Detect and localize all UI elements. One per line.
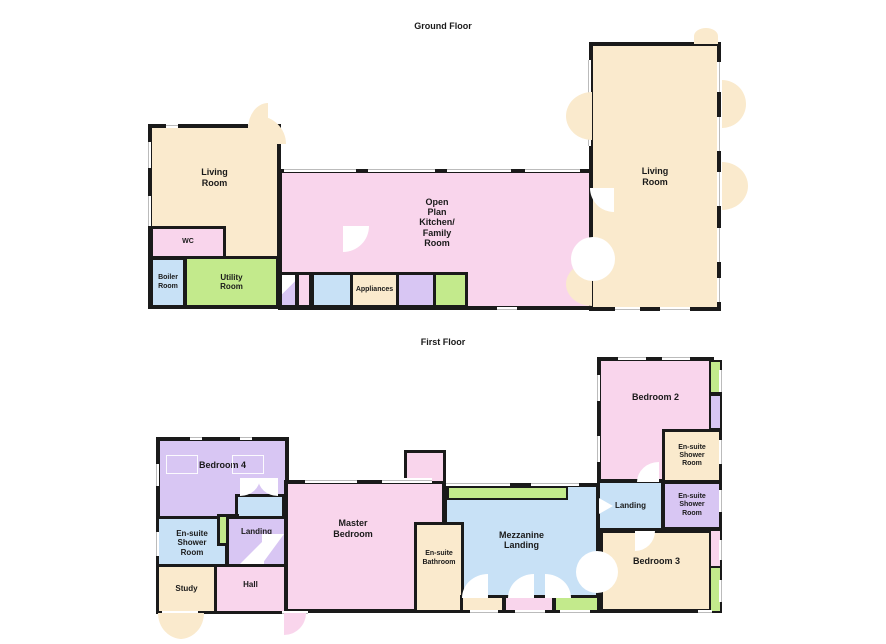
window xyxy=(618,355,646,360)
room-ensuite-shower-room-right: En-suite Shower Room xyxy=(662,481,722,530)
balcony-strip xyxy=(447,486,568,500)
door-swing-arc xyxy=(722,104,746,128)
window xyxy=(146,142,151,168)
door-swing-arc xyxy=(694,28,718,44)
window xyxy=(446,481,510,486)
window xyxy=(190,435,202,440)
window xyxy=(382,478,432,483)
ground-floor-title: Ground Floor xyxy=(0,21,886,31)
room-label: Landing xyxy=(615,501,646,510)
window xyxy=(717,228,722,262)
window xyxy=(154,532,159,556)
window xyxy=(447,167,511,172)
room-label: Mezzanine Landing xyxy=(499,530,544,551)
window xyxy=(719,580,724,602)
cupboard xyxy=(296,272,312,308)
room-ensuite-bathroom: En-suite Bathroom xyxy=(414,522,464,613)
window xyxy=(615,307,640,312)
door-swing-arc xyxy=(258,116,286,144)
window xyxy=(497,307,517,312)
door-swing-arc xyxy=(566,92,592,116)
spiral-stair xyxy=(571,237,615,281)
door-swing-arc xyxy=(284,613,306,635)
room-label: WC xyxy=(182,238,194,246)
room-label: Living Room xyxy=(201,167,228,188)
room-boiler-room: Boiler Room xyxy=(150,257,186,308)
door-swing-arc xyxy=(722,186,748,210)
door-swing-arc xyxy=(722,80,746,104)
cupboard xyxy=(311,272,353,308)
room-utility-room: Utility Room xyxy=(184,256,279,308)
room-label: Utility Room xyxy=(220,273,243,291)
window xyxy=(717,278,722,302)
window xyxy=(515,610,545,615)
room-appliances: Appliances xyxy=(350,272,399,308)
window xyxy=(470,610,498,615)
window xyxy=(586,60,591,96)
cupboard xyxy=(396,272,436,308)
room-label: Bedroom 3 xyxy=(633,556,680,566)
door-swing-arc xyxy=(566,116,592,140)
room-label: En-suite Shower Room xyxy=(176,529,208,557)
window xyxy=(660,307,690,312)
cupboard xyxy=(709,394,722,430)
window xyxy=(595,436,600,462)
floor-plan: Ground Floor Living Room Open Plan Kitch… xyxy=(0,0,886,644)
window xyxy=(146,196,151,226)
room-wc: WC xyxy=(150,226,226,259)
window xyxy=(719,440,724,464)
window xyxy=(698,610,712,615)
door-swing-arc xyxy=(722,162,748,186)
room-label: Study xyxy=(175,584,197,593)
room-label: Appliances xyxy=(356,286,393,294)
room-hall: Hall xyxy=(214,564,287,614)
room-label: En-suite Bathroom xyxy=(422,550,455,566)
room-study: Study xyxy=(156,564,217,614)
skylight xyxy=(166,455,198,474)
window xyxy=(531,481,579,486)
window xyxy=(525,167,580,172)
spiral-stair xyxy=(576,551,618,593)
window xyxy=(166,123,178,128)
window xyxy=(719,370,724,392)
window xyxy=(662,355,690,360)
room-label: En-suite Shower Room xyxy=(678,493,706,517)
room-label: Master Bedroom xyxy=(333,518,373,539)
window xyxy=(719,490,724,512)
room-label: Bedroom 2 xyxy=(632,392,679,402)
room-label: Boiler Room xyxy=(158,274,178,290)
skylight xyxy=(232,455,264,474)
room-label: Hall xyxy=(243,580,258,589)
window xyxy=(305,478,357,483)
room-label: Open Plan Kitchen/ Family Room xyxy=(419,197,455,249)
first-floor-title: First Floor xyxy=(0,337,886,347)
window xyxy=(284,167,356,172)
window xyxy=(719,540,724,560)
window xyxy=(240,435,252,440)
room-ensuite-shower-room-top-right: En-suite Shower Room xyxy=(662,429,722,483)
door-swing-arc xyxy=(158,613,182,639)
room-label: Living Room xyxy=(642,166,669,187)
room-label: En-suite Shower Room xyxy=(678,444,706,468)
cupboard xyxy=(433,272,468,308)
window xyxy=(560,610,590,615)
window xyxy=(368,167,435,172)
window xyxy=(595,375,600,401)
door-swing-arc xyxy=(180,613,204,639)
window xyxy=(154,464,159,486)
